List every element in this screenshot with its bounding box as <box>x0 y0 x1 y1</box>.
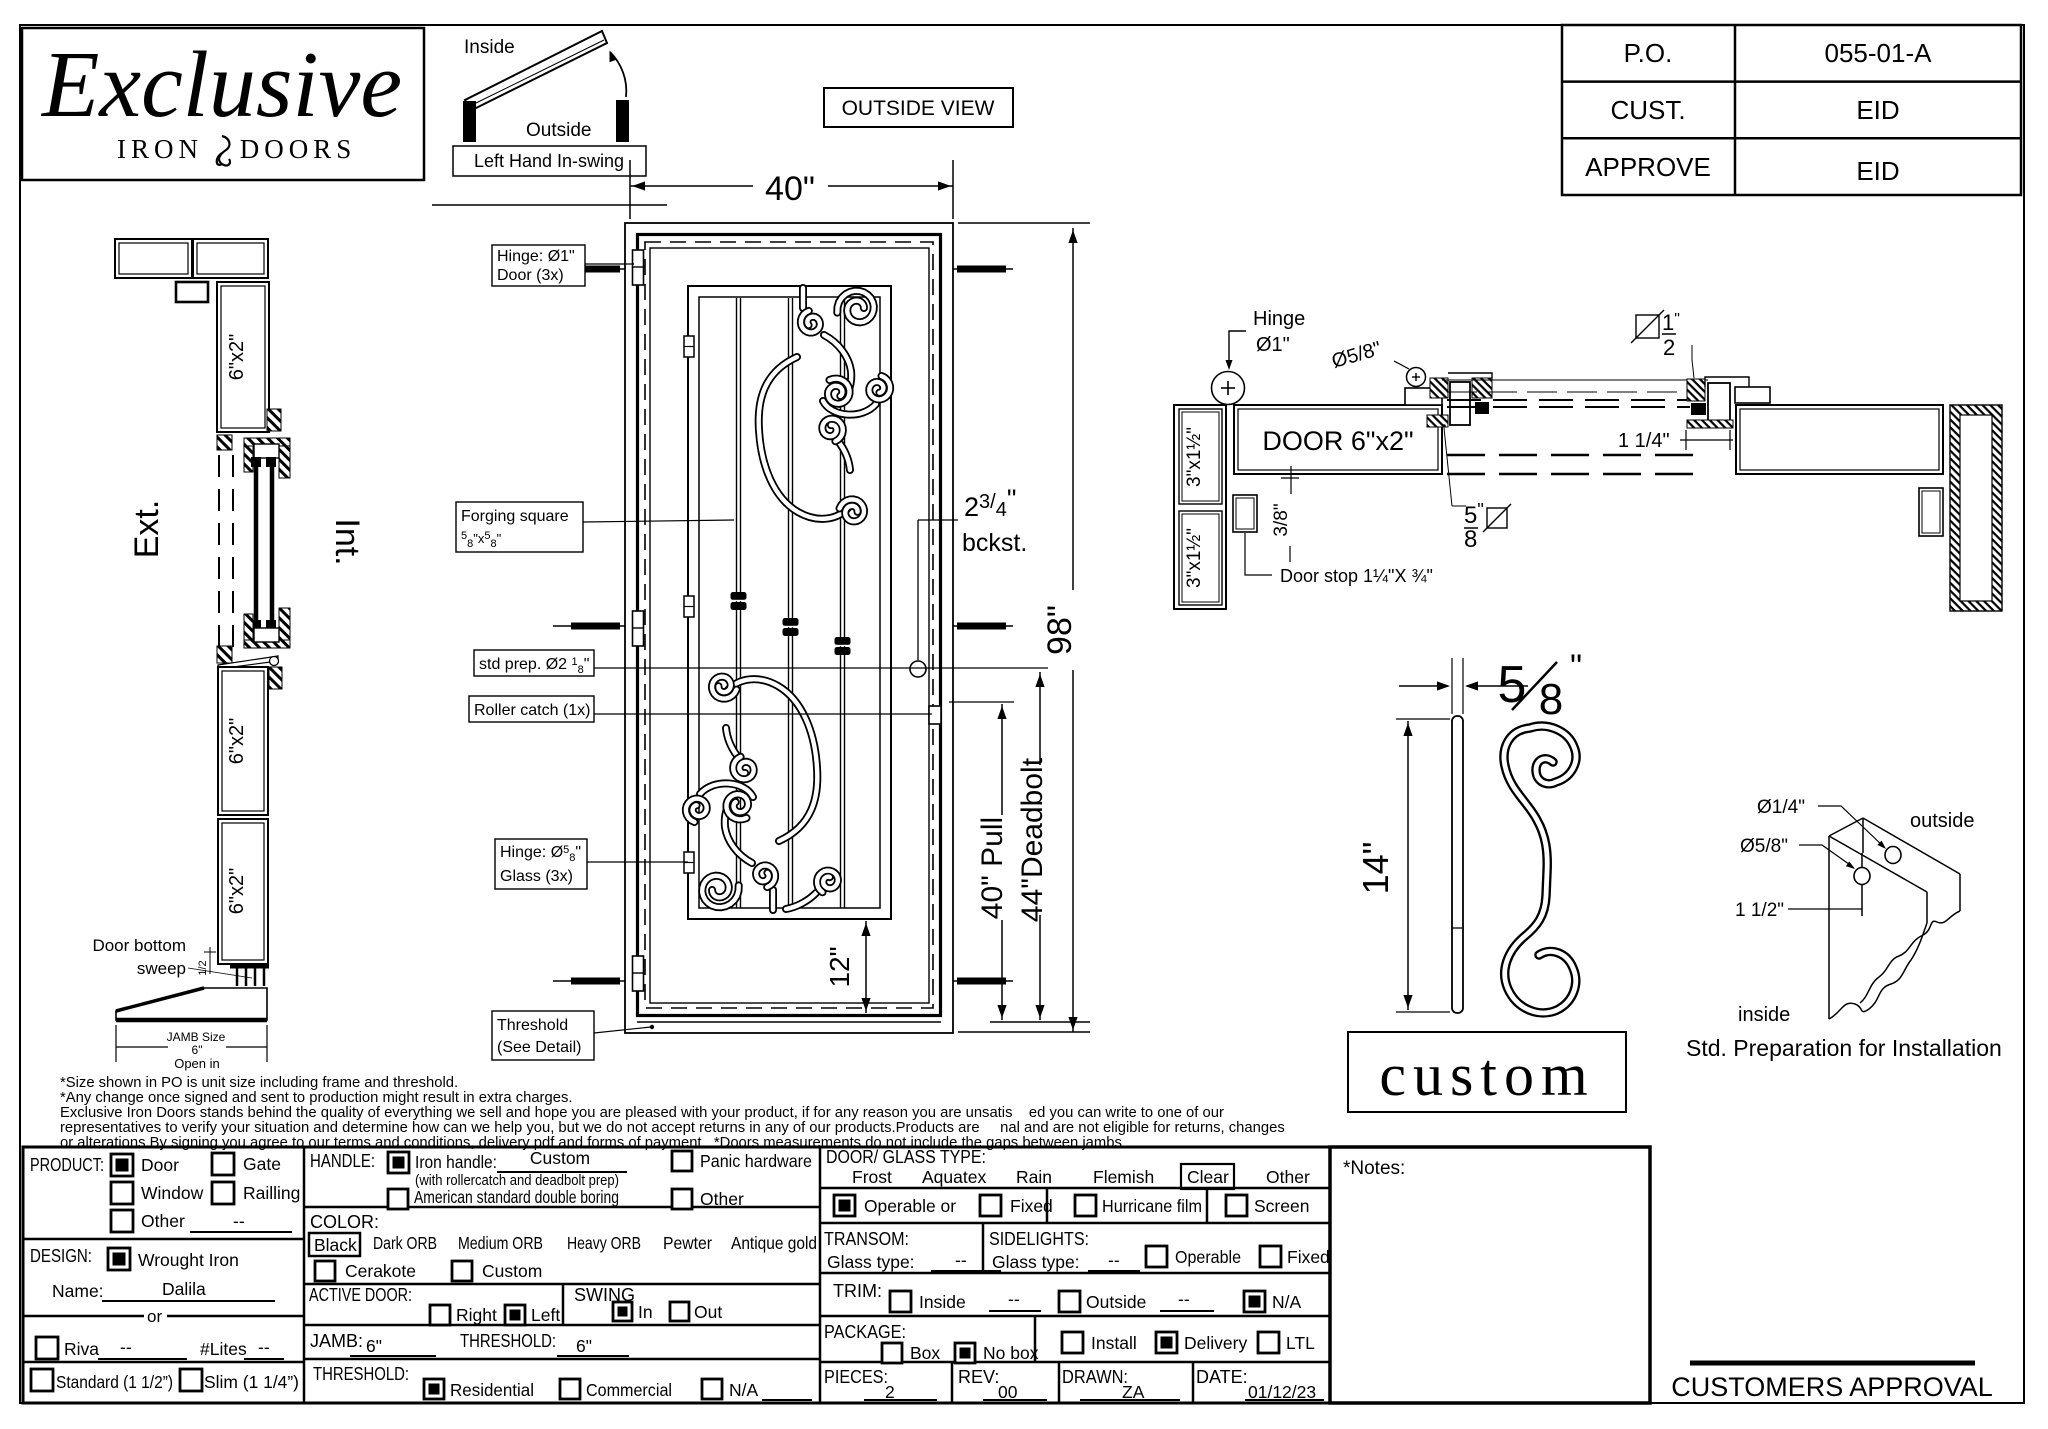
svg-text:Custom: Custom <box>482 1261 542 1281</box>
svg-text:Inside: Inside <box>464 37 515 58</box>
svg-text:Hinge: Ø1": Hinge: Ø1" <box>497 248 575 265</box>
svg-text:P.O.: P.O. <box>1624 38 1673 68</box>
svg-text:Install: Install <box>1091 1333 1137 1353</box>
svg-text:Open in: Open in <box>174 1056 220 1071</box>
svg-text:Exclusive Iron Doors stands be: Exclusive Iron Doors stands behind the q… <box>60 1105 1224 1121</box>
svg-text:Inside: Inside <box>919 1292 966 1312</box>
svg-text:--: -- <box>120 1337 132 1357</box>
svg-text:CUSTOMERS APPROVAL: CUSTOMERS APPROVAL <box>1671 1372 1993 1402</box>
svg-text:--: -- <box>1008 1289 1020 1309</box>
svg-text:Dalila: Dalila <box>162 1279 206 1299</box>
svg-text:Other: Other <box>700 1189 744 1209</box>
svg-text:THRESHOLD:: THRESHOLD: <box>313 1364 409 1384</box>
svg-text:2: 2 <box>1663 335 1675 360</box>
svg-text:Name:: Name: <box>52 1281 104 1301</box>
svg-text:SIDELIGHTS:: SIDELIGHTS: <box>989 1229 1089 1249</box>
svg-text:Window: Window <box>141 1183 204 1203</box>
svg-text:--: -- <box>258 1337 270 1357</box>
svg-text:Left Hand In-swing: Left Hand In-swing <box>474 151 624 171</box>
svg-text:3/8": 3/8" <box>1271 503 1292 536</box>
svg-text:--: -- <box>233 1211 245 1231</box>
svg-text:PRODUCT:: PRODUCT: <box>30 1155 104 1175</box>
svg-text:Glass type:: Glass type: <box>992 1252 1080 1272</box>
svg-text:Right: Right <box>456 1305 497 1325</box>
svg-text:3"x1½": 3"x1½" <box>1184 528 1205 588</box>
svg-text:Ext.: Ext. <box>128 500 166 559</box>
svg-text:sweep: sweep <box>137 959 186 978</box>
svg-text:outside: outside <box>1910 810 1975 832</box>
svg-text:6"x2": 6"x2" <box>226 868 248 914</box>
svg-text:In: In <box>638 1302 653 1322</box>
svg-text:THRESHOLD:: THRESHOLD: <box>460 1331 556 1351</box>
svg-text:JAMB Size: JAMB Size <box>167 1030 226 1044</box>
svg-text:Left: Left <box>531 1305 560 1325</box>
svg-text:Black: Black <box>314 1235 357 1255</box>
svg-text:REV:: REV: <box>958 1367 999 1387</box>
svg-text:--: -- <box>955 1250 967 1270</box>
svg-text:Antique gold: Antique gold <box>731 1233 817 1253</box>
svg-text:N/A: N/A <box>729 1380 759 1400</box>
svg-text:TRANSOM:: TRANSOM: <box>824 1229 909 1249</box>
svg-text:Int.: Int. <box>328 518 366 565</box>
svg-text:Out: Out <box>694 1302 722 1322</box>
svg-text:Exclusive: Exclusive <box>40 33 402 137</box>
svg-text:*Size shown in PO is unit size: *Size shown in PO is unit size including… <box>60 1075 458 1091</box>
svg-text:EID: EID <box>1856 95 1899 125</box>
svg-text:Ø1": Ø1" <box>1256 334 1290 356</box>
svg-text:Riva: Riva <box>64 1339 99 1359</box>
svg-text:American standard double borin: American standard double boring <box>414 1187 619 1207</box>
svg-text:8: 8 <box>1539 675 1563 724</box>
svg-text:Glass (3x): Glass (3x) <box>500 868 573 885</box>
svg-text:Heavy ORB: Heavy ORB <box>567 1233 641 1253</box>
svg-text:Box: Box <box>910 1343 940 1363</box>
svg-text:Operable or: Operable or <box>864 1196 956 1216</box>
svg-text:Door: Door <box>141 1155 179 1175</box>
svg-text:14": 14" <box>1355 842 1396 895</box>
svg-text:*Any change once signed and se: *Any change once signed and sent to prod… <box>60 1090 572 1106</box>
svg-text:Commercial: Commercial <box>586 1380 672 1400</box>
svg-text:Custom: Custom <box>530 1148 590 1168</box>
svg-text:Roller catch (1x): Roller catch (1x) <box>474 702 590 719</box>
svg-text:40" Pull: 40" Pull <box>976 817 1009 919</box>
svg-text:Outside: Outside <box>1086 1292 1146 1312</box>
svg-text:--: -- <box>1108 1250 1120 1270</box>
svg-text:DOORS: DOORS <box>240 134 357 164</box>
svg-text:Screen: Screen <box>1254 1196 1309 1216</box>
svg-text:Gate: Gate <box>243 1154 281 1174</box>
svg-text:8: 8 <box>1464 526 1477 553</box>
svg-text:40": 40" <box>765 170 815 208</box>
svg-text:": " <box>1570 648 1582 686</box>
svg-text:PACKAGE:: PACKAGE: <box>824 1322 906 1342</box>
svg-text:LTL: LTL <box>1286 1333 1315 1353</box>
svg-text:DOOR 6"x2": DOOR 6"x2" <box>1262 426 1413 456</box>
svg-text:Hinge: Hinge <box>1253 308 1305 330</box>
svg-text:Door stop 1¼"X ¾": Door stop 1¼"X ¾" <box>1280 566 1433 586</box>
svg-text:bckst.: bckst. <box>962 529 1027 557</box>
svg-text:DRAWN:: DRAWN: <box>1062 1367 1128 1387</box>
svg-text:Fixed: Fixed <box>1287 1247 1330 1267</box>
svg-text:N/A: N/A <box>1272 1292 1302 1312</box>
svg-text:CUST.: CUST. <box>1610 95 1685 125</box>
svg-text:Cerakote: Cerakote <box>345 1261 416 1281</box>
svg-text:(See Detail): (See Detail) <box>497 1039 581 1056</box>
svg-text:44"Deadbolt: 44"Deadbolt <box>1016 757 1049 922</box>
svg-text:#Lites: #Lites <box>200 1339 247 1359</box>
svg-text:TRIM:: TRIM: <box>833 1281 882 1301</box>
svg-text:EID: EID <box>1856 156 1899 186</box>
svg-text:6": 6" <box>366 1336 382 1356</box>
svg-text:Outside: Outside <box>526 120 591 141</box>
svg-text:Door bottom: Door bottom <box>92 936 186 955</box>
svg-text:1 1/4": 1 1/4" <box>1618 430 1670 452</box>
svg-text:6": 6" <box>192 1043 203 1057</box>
svg-text:Slim (1 1/4”): Slim (1 1/4”) <box>204 1372 299 1392</box>
svg-text:6"x2": 6"x2" <box>226 334 248 380</box>
svg-text:Ø1/4": Ø1/4" <box>1757 797 1805 818</box>
svg-text:12": 12" <box>824 946 855 987</box>
svg-text:Forging square: Forging square <box>461 508 569 525</box>
svg-text:PIECES:: PIECES: <box>824 1367 888 1387</box>
svg-text:Frost: Frost <box>852 1167 892 1187</box>
svg-text:APPROVE: APPROVE <box>1585 152 1711 182</box>
svg-text:Rain: Rain <box>1016 1167 1052 1187</box>
svg-text:Clear: Clear <box>1187 1167 1229 1187</box>
svg-text:DESIGN:: DESIGN: <box>30 1246 92 1266</box>
svg-text:*Notes:: *Notes: <box>1343 1158 1405 1179</box>
svg-text:Other: Other <box>141 1211 185 1231</box>
svg-text:DOOR/ GLASS TYPE:: DOOR/ GLASS TYPE: <box>826 1147 986 1167</box>
svg-text:Standard (1 1/2”): Standard (1 1/2”) <box>56 1372 173 1392</box>
svg-text:Threshold: Threshold <box>497 1017 568 1034</box>
svg-text:OUTSIDE VIEW: OUTSIDE VIEW <box>842 97 995 120</box>
svg-text:3"x1½": 3"x1½" <box>1184 427 1205 487</box>
svg-text:Aquatex: Aquatex <box>922 1167 986 1187</box>
svg-text:Dark ORB: Dark ORB <box>373 1233 437 1253</box>
svg-text:6": 6" <box>576 1336 592 1356</box>
svg-text:Panic hardware: Panic hardware <box>700 1151 812 1171</box>
svg-text:Other: Other <box>1266 1167 1310 1187</box>
svg-text:representatives to verify your: representatives to verify your situation… <box>60 1120 1285 1136</box>
svg-text:Fixed: Fixed <box>1010 1196 1053 1216</box>
svg-text:ACTIVE DOOR:: ACTIVE DOOR: <box>309 1285 412 1305</box>
svg-text:Ø5/8": Ø5/8" <box>1740 836 1788 857</box>
svg-text:JAMB:: JAMB: <box>310 1331 363 1351</box>
svg-text:Delivery: Delivery <box>1184 1333 1247 1353</box>
svg-text:Std. Preparation for Installat: Std. Preparation for Installation <box>1686 1035 2002 1061</box>
svg-text:No box: No box <box>983 1343 1039 1363</box>
svg-text:custom: custom <box>1379 1042 1594 1108</box>
svg-text:HANDLE:: HANDLE: <box>310 1151 375 1171</box>
svg-text:or: or <box>147 1307 162 1326</box>
svg-text:6"x2": 6"x2" <box>226 718 248 764</box>
svg-text:1/2: 1/2 <box>197 960 209 975</box>
svg-text:98": 98" <box>1041 605 1079 655</box>
svg-text:Medium ORB: Medium ORB <box>458 1233 543 1253</box>
svg-text:055-01-A: 055-01-A <box>1825 38 1933 68</box>
svg-text:Wrought Iron: Wrought Iron <box>138 1250 239 1270</box>
svg-text:--: -- <box>1178 1289 1190 1309</box>
svg-text:DATE:: DATE: <box>1196 1367 1248 1387</box>
svg-text:1 1/2": 1 1/2" <box>1735 900 1784 921</box>
svg-text:inside: inside <box>1738 1004 1790 1026</box>
svg-text:IRON: IRON <box>117 134 203 164</box>
svg-text:Flemish: Flemish <box>1093 1167 1154 1187</box>
svg-text:Operable: Operable <box>1175 1247 1241 1267</box>
svg-text:Door (3x): Door (3x) <box>497 267 564 284</box>
svg-text:Hurricane film: Hurricane film <box>1102 1196 1202 1216</box>
svg-text:Iron handle:: Iron handle: <box>415 1152 497 1172</box>
svg-text:Railling: Railling <box>243 1183 300 1203</box>
svg-text:COLOR:: COLOR: <box>310 1212 379 1232</box>
svg-text:Glass type:: Glass type: <box>827 1252 915 1272</box>
svg-text:Residential: Residential <box>450 1380 534 1400</box>
svg-text:Pewter: Pewter <box>663 1233 712 1253</box>
svg-text:5: 5 <box>1498 656 1527 714</box>
